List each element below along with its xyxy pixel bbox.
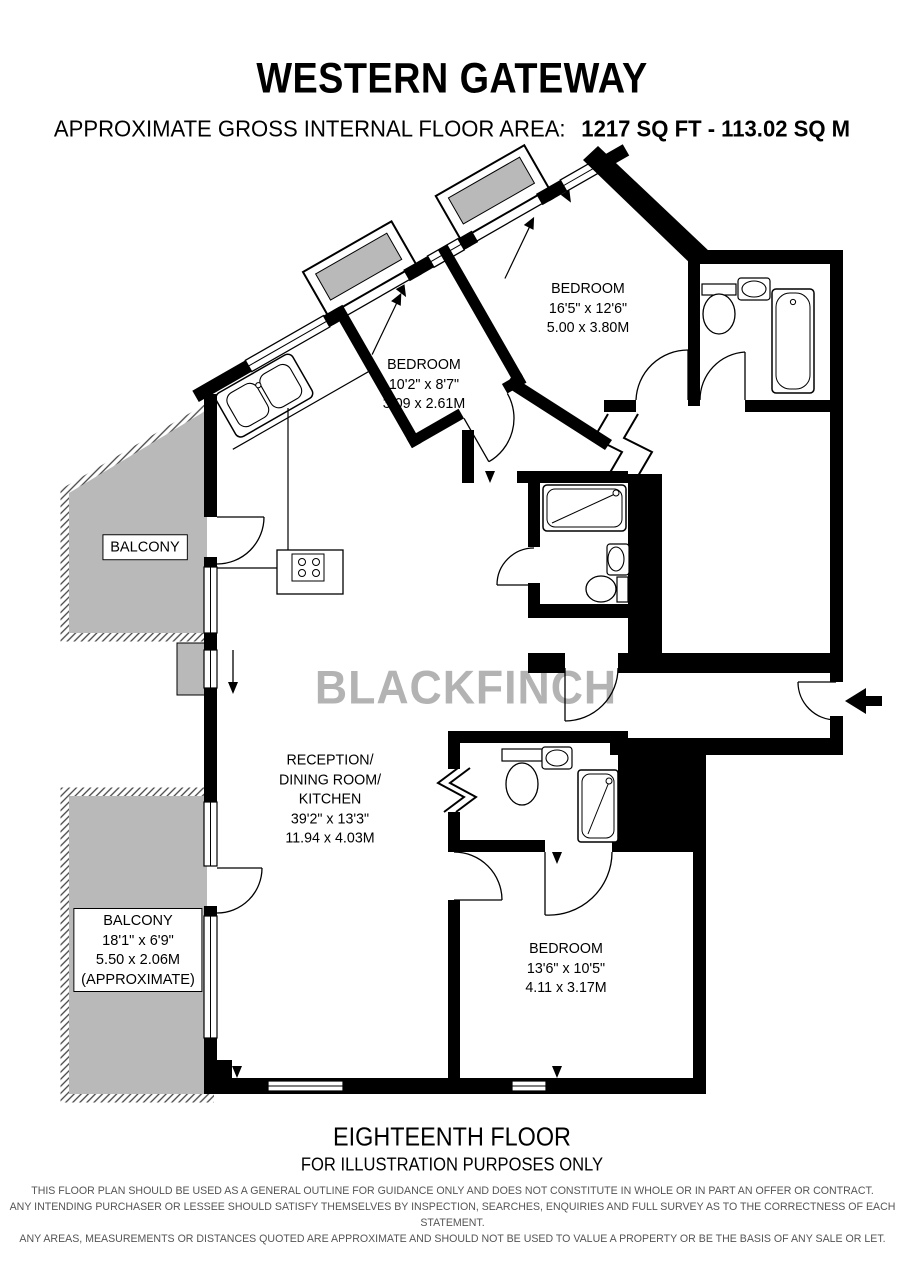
bedroom3-wall <box>448 900 460 1078</box>
balcony-bottom-door <box>217 868 262 913</box>
wall-marker <box>552 852 562 864</box>
bedroom3-door <box>454 852 502 900</box>
room-label-reception: RECEPTION/ DINING ROOM/ KITCHEN 39'2" x … <box>279 750 381 848</box>
bathroom1-door <box>700 352 745 400</box>
balcony-top-label: BALCONY <box>102 534 187 560</box>
bathroom2-door <box>497 548 534 585</box>
bathroom3-sink <box>542 747 572 769</box>
bathtub <box>772 289 814 393</box>
floor-name: EIGHTEENTH FLOOR <box>333 1122 571 1153</box>
bathroom1-sink <box>738 278 770 300</box>
page-title: WESTERN GATEWAY <box>256 55 647 104</box>
bathroom3-shower <box>578 770 618 842</box>
hall-door <box>565 668 618 721</box>
bathroom3-door <box>545 852 612 915</box>
disclaimer-text: THIS FLOOR PLAN SHOULD BE USED AS A GENE… <box>0 1184 905 1248</box>
room-label-bedroom-top-right: BEDROOM 16'5" x 12'6" 5.00 x 3.80M <box>547 279 629 338</box>
bathroom2-toilet <box>586 576 628 602</box>
right-wall <box>693 743 706 1094</box>
corner-wall <box>583 146 710 268</box>
balcony-bottom-label: BALCONY 18'1" x 6'9" 5.50 x 2.06M (APPRO… <box>73 908 202 992</box>
bathroom3-walls <box>448 731 706 852</box>
area-summary: APPROXIMATE GROSS INTERNAL FLOOR AREA: 1… <box>54 116 850 143</box>
bedroom1-door <box>636 350 688 400</box>
area-value: 1217 SQ FT - 113.02 SQ M <box>581 116 850 142</box>
bathroom3-toilet <box>502 749 542 805</box>
room-label-bedroom-middle: BEDROOM 10'2" x 8'7" 3.09 x 2.61M <box>383 355 465 414</box>
bay-window <box>303 221 444 364</box>
bathroom2-walls <box>462 430 662 654</box>
entrance-arrow-icon <box>845 688 882 714</box>
illustration-note: FOR ILLUSTRATION PURPOSES ONLY <box>301 1155 603 1176</box>
entrance-door <box>798 682 836 720</box>
floor-plan-drawing <box>0 0 905 1280</box>
balcony-top-door <box>217 517 264 564</box>
bedroom2-door <box>464 393 532 461</box>
shower-tray <box>543 485 626 531</box>
area-label: APPROXIMATE GROSS INTERNAL FLOOR AREA: <box>54 116 566 142</box>
wall-break <box>438 768 476 812</box>
kitchen-hob <box>277 550 343 594</box>
bathroom1-toilet <box>702 284 736 334</box>
floor-plan-page: BLACKFINCH <box>0 0 905 1280</box>
arrow-down-icon <box>228 650 238 694</box>
room-label-bedroom-bottom: BEDROOM 13'6" x 10'5" 4.11 x 3.17M <box>525 939 606 998</box>
balcony-step <box>177 643 207 695</box>
balcony-top-area <box>65 404 214 637</box>
wall-marker <box>485 471 495 483</box>
bathroom2-sink <box>607 544 629 575</box>
